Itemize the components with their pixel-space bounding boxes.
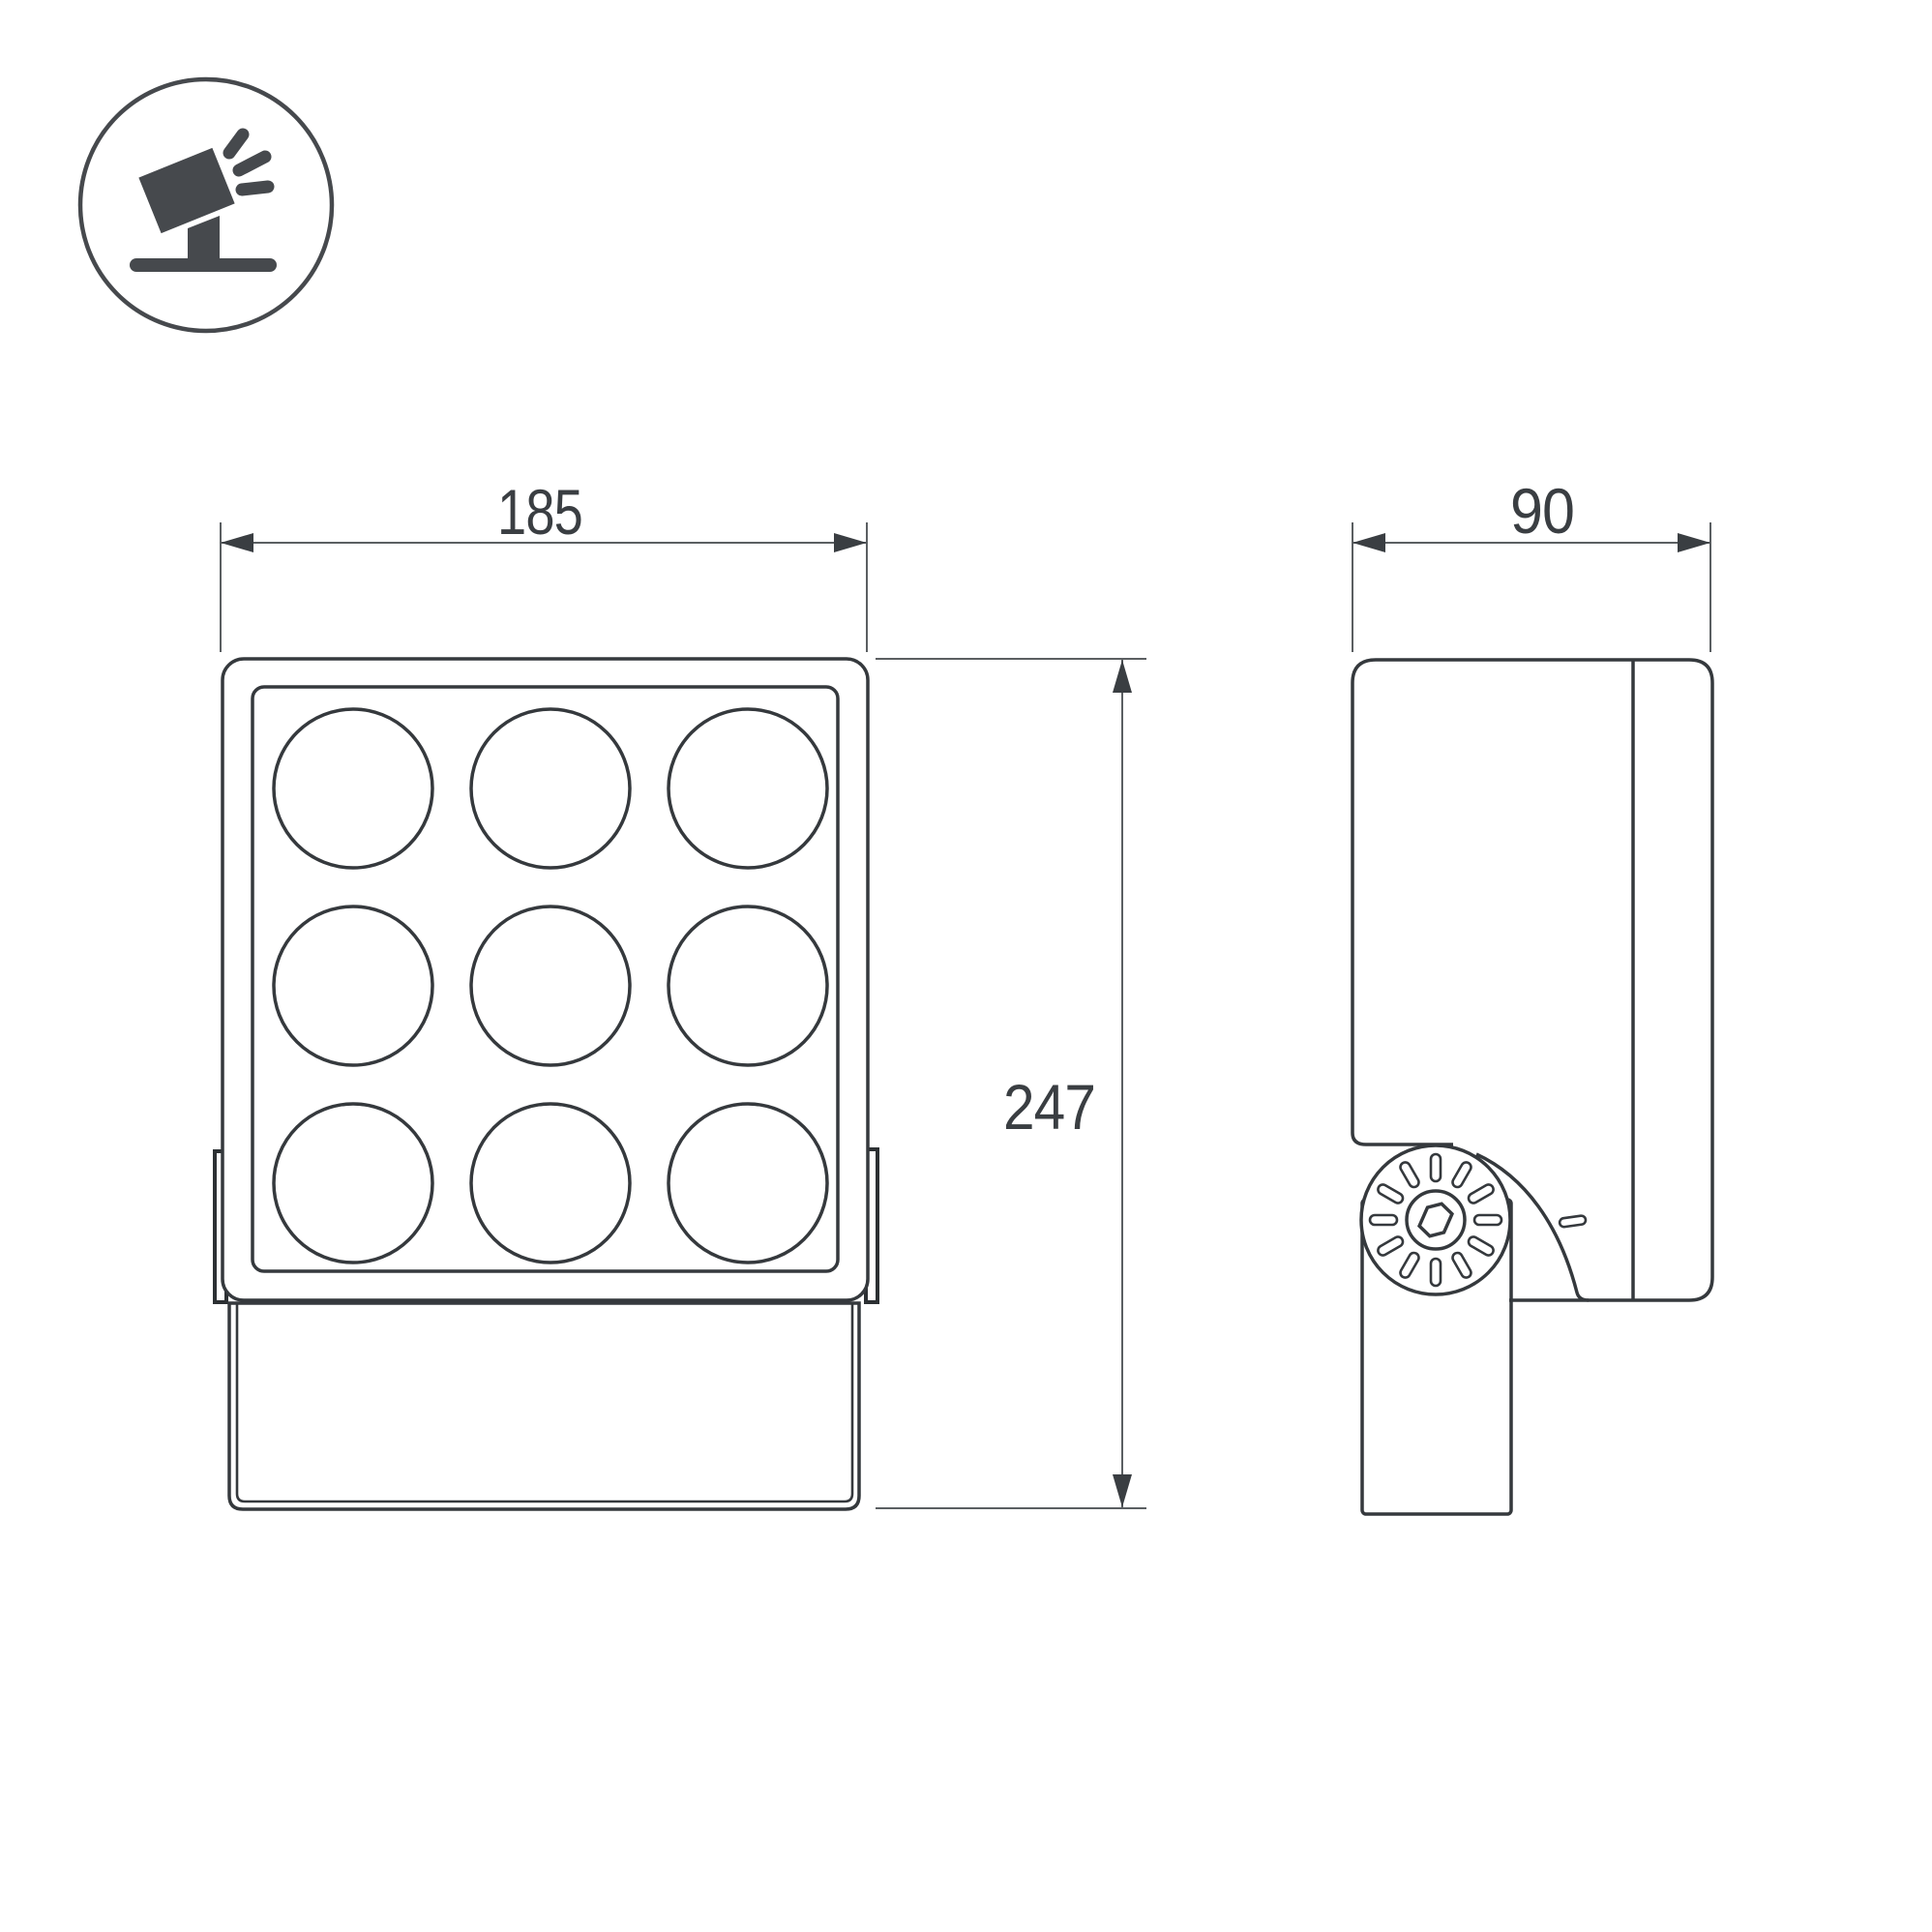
arrow-left xyxy=(221,533,253,552)
technical-drawing-page: 185 247 90 xyxy=(0,0,1932,1932)
floodlight-type-icon xyxy=(80,79,332,331)
front-width-dimension: 185 xyxy=(221,476,867,652)
adjustment-slot xyxy=(1431,1154,1441,1181)
arrow-up xyxy=(1113,660,1132,693)
arrow-down xyxy=(1113,1474,1132,1507)
front-width-label: 185 xyxy=(497,476,582,548)
front-height-label: 247 xyxy=(1003,1071,1095,1143)
adjustment-slot xyxy=(1474,1215,1501,1225)
lamp-base-icon xyxy=(130,258,277,272)
light-ray-icon xyxy=(242,187,268,190)
front-housing-outline xyxy=(223,659,868,1300)
tilted-floodlight-icon xyxy=(130,134,277,272)
lamp-post-icon xyxy=(188,216,220,262)
lamp-head-icon xyxy=(138,148,234,233)
side-width-dimension: 90 xyxy=(1352,475,1710,652)
floodlight-dimension-drawing: 185 247 90 xyxy=(0,0,1932,1932)
front-height-dimension: 247 xyxy=(876,659,1146,1508)
adjustment-slot xyxy=(1431,1259,1441,1286)
light-ray-icon xyxy=(239,157,265,170)
side-width-label: 90 xyxy=(1510,475,1574,547)
arrow-left xyxy=(1352,533,1385,552)
front-view: 185 247 xyxy=(215,476,1146,1509)
light-ray-icon xyxy=(229,134,243,153)
side-view: 90 xyxy=(1352,475,1712,1514)
adjustment-slot xyxy=(1370,1215,1397,1225)
mounting-plate-outer xyxy=(229,1303,859,1509)
arrow-right xyxy=(834,533,867,552)
arrow-right xyxy=(1678,533,1710,552)
